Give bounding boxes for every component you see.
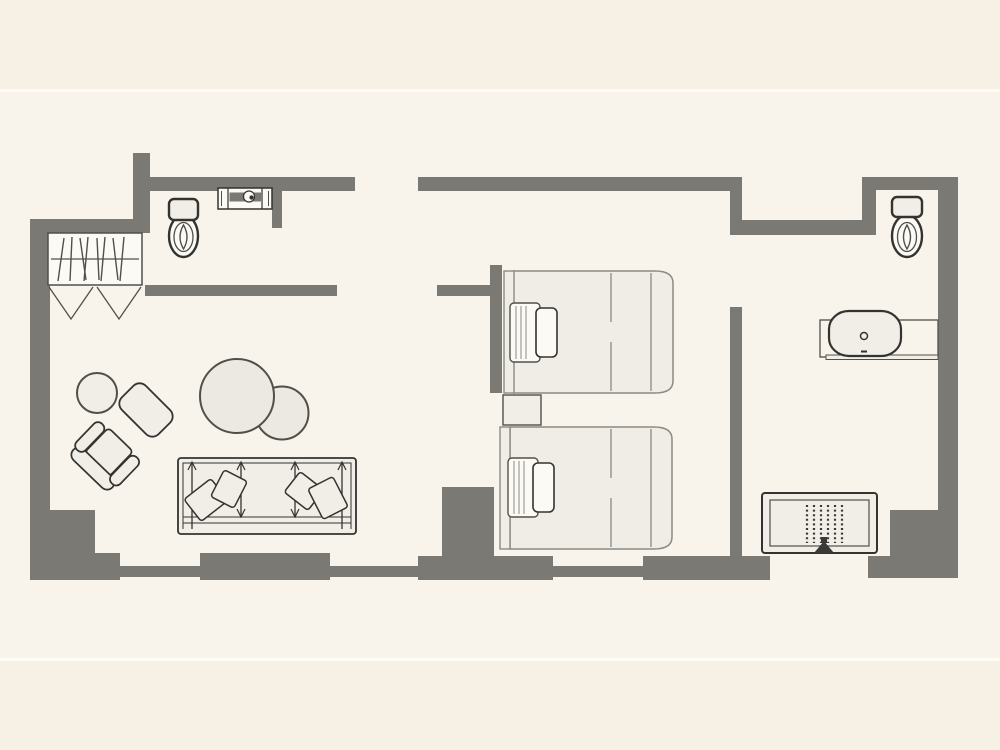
- wall-bottom-pier-b: [643, 556, 770, 580]
- wall-bedhead-stub: [490, 265, 502, 393]
- floorplan-drawing: [0, 0, 1000, 750]
- bench-strap-buckle: [821, 537, 827, 543]
- floorplan-canvas: [0, 0, 1000, 750]
- wall-corridor-right: [437, 285, 493, 296]
- side-table: [77, 373, 117, 413]
- wall-bottom-pier-a: [200, 553, 330, 580]
- ottoman: [116, 380, 177, 441]
- bed-pillows: [510, 303, 557, 362]
- armchair: [66, 419, 143, 495]
- wall-alcove-right: [133, 153, 150, 233]
- vanity-counter: [218, 188, 272, 209]
- wall-right: [938, 177, 958, 511]
- toilet-drain: [180, 225, 187, 249]
- luggage-bench: [762, 493, 877, 553]
- wall-bottom-right-block: [868, 556, 958, 578]
- wall-notch-bottom: [730, 220, 876, 235]
- wall-alcove-top: [30, 219, 140, 233]
- wall-notch-right: [862, 177, 876, 235]
- wall-right-corner-step: [890, 510, 958, 558]
- bathroom-sink-counter: [820, 311, 938, 360]
- bed-lower: [500, 427, 672, 549]
- closet-with-hangers: [48, 233, 142, 319]
- bathroom-toilet: [892, 197, 922, 257]
- vanity-sink-drain: [249, 195, 253, 199]
- bed-pillows: [508, 458, 554, 517]
- sink-basin: [829, 311, 901, 356]
- bench-frame: [762, 493, 877, 553]
- entry-toilet: [169, 199, 198, 257]
- wall-bottom-center-base: [418, 556, 553, 580]
- bifold-door-left: [49, 287, 93, 319]
- nightstand: [503, 395, 541, 425]
- wall-corridor-left: [145, 285, 337, 296]
- sofa-bed: [178, 458, 356, 534]
- wall-vanity-return: [272, 188, 282, 228]
- bed-upper: [504, 271, 673, 393]
- bifold-door-right: [97, 287, 141, 319]
- wall-bottom-left-corner: [30, 510, 95, 580]
- wall-top-middle: [418, 177, 733, 191]
- toilet-drain: [904, 225, 911, 249]
- toilet-tank: [169, 199, 198, 220]
- toilet-tank: [892, 197, 922, 217]
- wall-bottom-window-b: [330, 566, 418, 577]
- wall-bottom-window-c: [553, 566, 643, 577]
- wall-partition-bathroom: [730, 307, 742, 577]
- wall-bottom-window-a: [120, 566, 200, 577]
- wall-bottom-left-step: [95, 553, 120, 580]
- coffee-table-large: [200, 359, 274, 433]
